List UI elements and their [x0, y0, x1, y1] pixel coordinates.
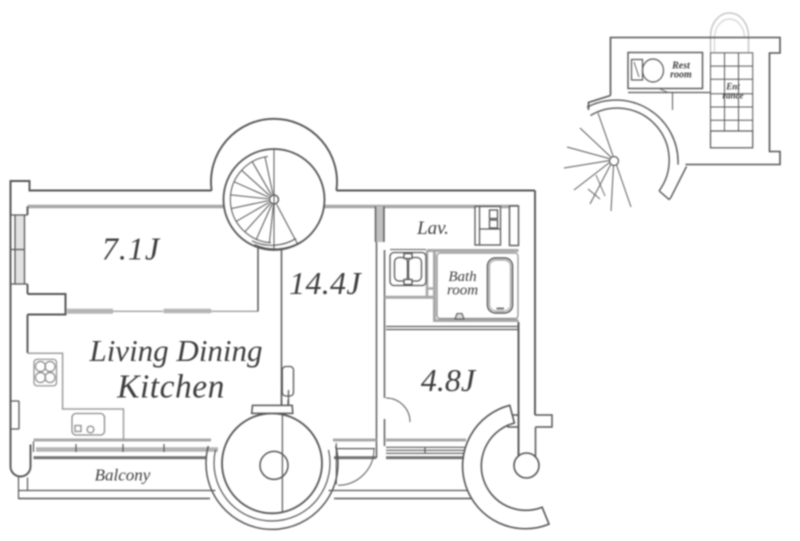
svg-text:rance: rance	[723, 91, 744, 101]
svg-text:7.1J: 7.1J	[102, 231, 161, 267]
svg-text:Kitchen: Kitchen	[116, 369, 225, 406]
svg-text:Balcony: Balcony	[95, 466, 151, 485]
svg-text:Lav.: Lav.	[416, 218, 449, 239]
svg-text:room: room	[447, 283, 478, 299]
svg-text:4.8J: 4.8J	[421, 362, 477, 398]
svg-text:Living Dining: Living Dining	[88, 333, 262, 368]
svg-text:14.4J: 14.4J	[289, 265, 362, 301]
svg-text:room: room	[670, 70, 692, 81]
